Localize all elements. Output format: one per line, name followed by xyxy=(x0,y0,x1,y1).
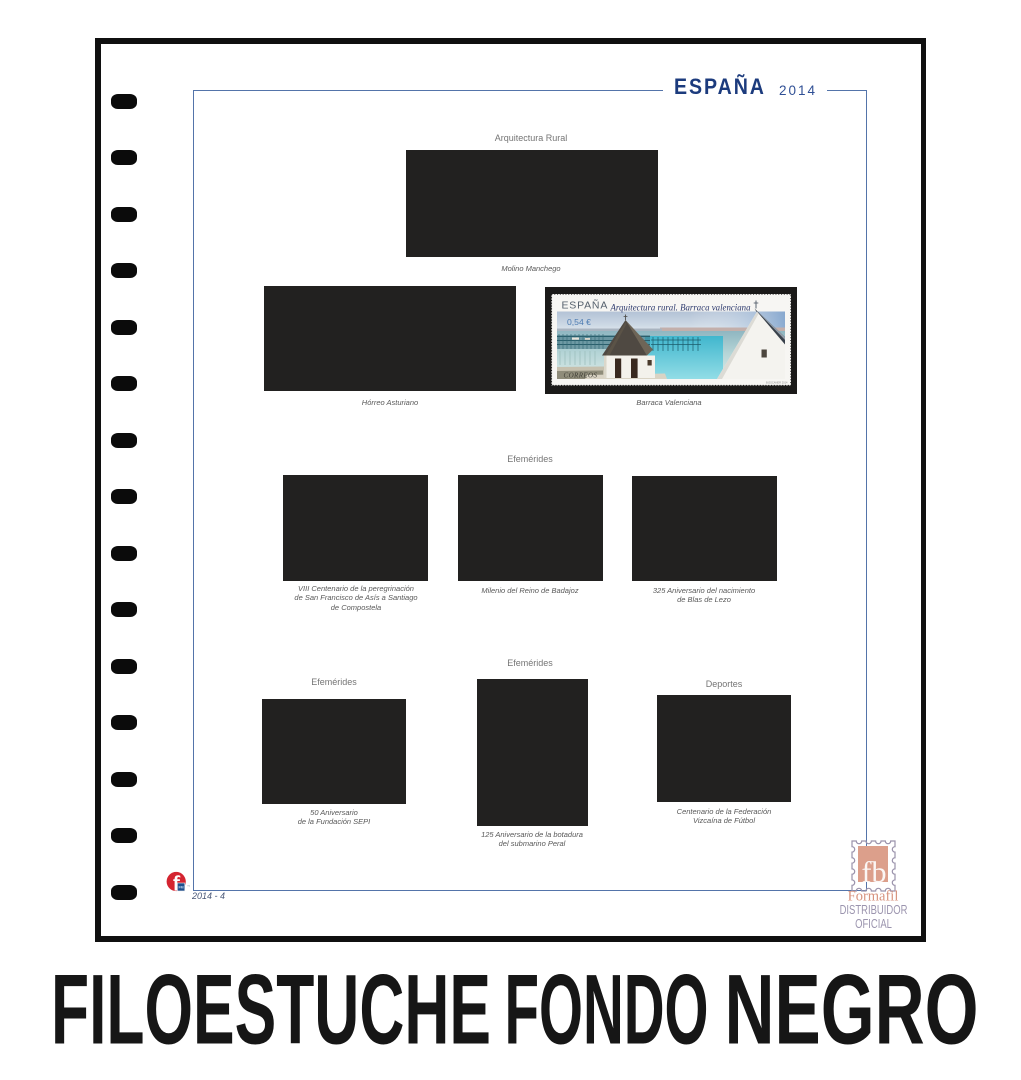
svg-text:0,54 €: 0,54 € xyxy=(567,317,591,327)
svg-text:FILOESTUCHE: FILOESTUCHE xyxy=(51,954,491,1065)
svg-text:OFICIAL: OFICIAL xyxy=(855,918,892,932)
svg-text:FM: FM xyxy=(178,885,183,889)
svg-text:DISTRIBUIDOR: DISTRIBUIDOR xyxy=(840,904,908,918)
svg-text:CORREOS: CORREOS xyxy=(564,372,598,380)
svg-text:NEGRO: NEGRO xyxy=(725,954,979,1065)
svg-text:ESPAÑA: ESPAÑA xyxy=(562,298,609,311)
svg-text:B.ESCANER 2014: B.ESCANER 2014 xyxy=(766,381,788,385)
svg-text:fb: fb xyxy=(862,856,887,889)
svg-text:™: ™ xyxy=(187,885,190,889)
svg-text:Formafil: Formafil xyxy=(848,889,899,905)
svg-text:FONDO: FONDO xyxy=(505,954,709,1065)
svg-text:Arquitectura rural. Barraca v: Arquitectura rural. Barraca valenciana xyxy=(610,303,751,313)
